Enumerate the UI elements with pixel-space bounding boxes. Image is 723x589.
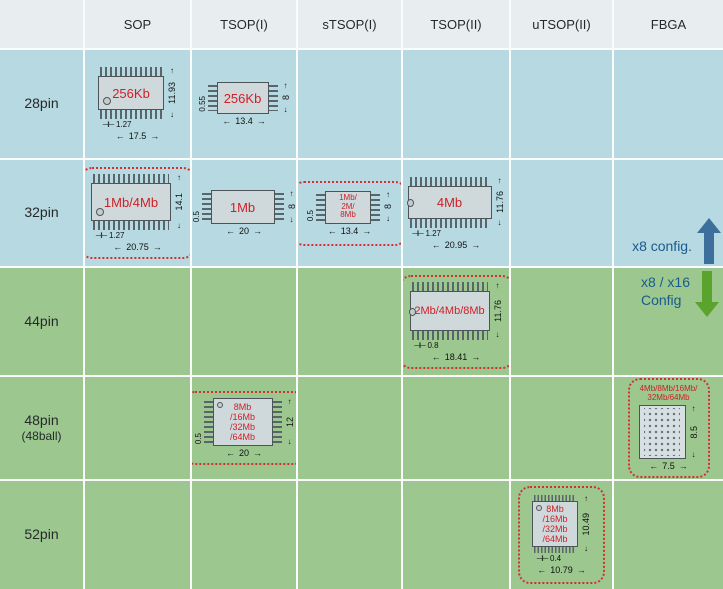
row-label-52pin: 52pin	[0, 481, 83, 589]
row-label-text: 28pin	[24, 95, 58, 113]
capacity-label: 4Mb	[437, 195, 462, 210]
width-dimension: 20.95	[432, 240, 481, 250]
height-dimension: 8	[287, 190, 297, 224]
header-stsop1: sTSOP(I)	[298, 0, 401, 48]
cell-52pin-sop	[85, 481, 190, 589]
header-tsop1: TSOP(I)	[192, 0, 296, 48]
cell-48pin-fbga: 4Mb/8Mb/16Mb/ 32Mb/64Mb 8.5 7.5	[614, 377, 723, 479]
cell-48pin-utsop2	[511, 377, 612, 479]
height-dimension: 8	[281, 82, 291, 114]
chip-pins-top	[410, 177, 490, 186]
cell-28pin-sop: 256Kb 11.93 1.27 17.5	[85, 50, 190, 158]
row-label-48pin: 48pin (48ball)	[0, 377, 83, 479]
sop-chip-drawing: 256Kb	[98, 67, 164, 119]
header-utsop2: uTSOP(II)	[511, 0, 612, 48]
tsop2-chip-drawing: 4Mb	[408, 177, 492, 228]
cell-28pin-tsop2	[403, 50, 509, 158]
pitch-dimension: 1.27	[95, 231, 125, 240]
height-dimension: 12	[285, 398, 295, 446]
package-tsop2-44pin-highlighted: 2Mb/4Mb/8Mb 11.76 0.8 18.41	[403, 275, 509, 369]
cell-44pin-stsop1	[298, 268, 401, 375]
chip-pins-top	[100, 67, 162, 76]
row-label-text: 44pin	[24, 313, 58, 331]
row-label-44pin: 44pin	[0, 268, 83, 375]
chip-pins-bottom	[93, 221, 169, 230]
capacity-label: 8Mb /16Mb /32Mb /64Mb	[230, 402, 255, 442]
height-dimension: 8.5	[689, 405, 699, 459]
cell-52pin-fbga	[614, 481, 723, 589]
chip-pins-bottom	[412, 331, 488, 340]
thickness-dimension: 0.5	[306, 210, 315, 221]
width-dimension: 20.75	[113, 242, 162, 252]
x8-x16-down-arrow-icon	[695, 271, 719, 317]
chip-pins-top	[412, 282, 488, 291]
capacity-label: 1Mb	[230, 200, 255, 215]
capacity-label: 2Mb/4Mb/8Mb	[414, 305, 484, 317]
chip-pins-bottom	[534, 547, 576, 553]
row-label-text: 52pin	[24, 526, 58, 544]
chip-pins-right	[273, 401, 282, 443]
row-label-text: 32pin	[24, 204, 58, 222]
width-dimension: 18.41	[432, 352, 481, 362]
cell-28pin-stsop1	[298, 50, 401, 158]
capacity-label: 1Mb/ 2M/ 8Mb	[339, 194, 357, 221]
height-dimension: 8	[383, 191, 393, 224]
thickness-dimension: 0.55	[198, 96, 207, 112]
row-label-28pin: 28pin	[0, 50, 83, 158]
capacity-label: 256Kb	[224, 91, 262, 106]
cell-32pin-tsop2: 4Mb 11.76 1.27 20.95	[403, 160, 509, 266]
fbga-chip-drawing	[639, 405, 686, 459]
cell-52pin-tsop2	[403, 481, 509, 589]
package-utsop2-52pin-highlighted: 8Mb /16Mb /32Mb /64Mb 10.49 0.4 10.79	[518, 486, 605, 584]
cell-52pin-stsop1	[298, 481, 401, 589]
width-dimension: 10.79	[537, 565, 586, 575]
tsop1-chip-drawing: 8Mb /16Mb /32Mb /64Mb	[204, 398, 282, 446]
capacity-label: 8Mb /16Mb /32Mb /64Mb	[542, 504, 567, 544]
cell-32pin-sop: 1Mb/4Mb 14.1 1.27 20.75	[85, 160, 190, 266]
width-dimension: 20	[226, 448, 262, 458]
chip-pins-left	[208, 85, 217, 111]
tsop1-chip-drawing: 256Kb	[208, 82, 278, 114]
tsop1-chip-drawing: 1Mb	[202, 190, 284, 224]
width-dimension: 7.5	[649, 461, 688, 471]
package-sop-28pin: 256Kb 11.93 1.27 17.5	[98, 67, 177, 141]
cell-44pin-fbga-x8x16-note: x8 / x16 Config	[614, 268, 723, 375]
tsop2-chip-drawing: 2Mb/4Mb/8Mb	[410, 282, 490, 340]
width-dimension: 17.5	[116, 131, 160, 141]
cell-28pin-utsop2	[511, 50, 612, 158]
chip-pins-left	[316, 194, 325, 221]
pitch-dimension: 0.8	[414, 341, 439, 350]
package-sop-32pin-highlighted: 1Mb/4Mb 14.1 1.27 20.75	[85, 167, 190, 259]
height-dimension: 14.1	[174, 174, 184, 230]
cell-28pin-tsop1: 0.55 256Kb 8 13.4	[192, 50, 296, 158]
chip-pins-bottom	[410, 219, 490, 228]
package-fbga-48ball-highlighted: 4Mb/8Mb/16Mb/ 32Mb/64Mb 8.5 7.5	[628, 378, 710, 479]
row-sublabel-text: (48ball)	[21, 429, 61, 444]
ball-grid	[644, 408, 680, 456]
package-matrix-table: SOP TSOP(I) sTSOP(I) TSOP(II) uTSOP(II) …	[0, 0, 723, 589]
sop-chip-drawing: 1Mb/4Mb	[91, 174, 171, 230]
cell-28pin-fbga	[614, 50, 723, 158]
width-dimension: 13.4	[328, 226, 372, 236]
row-label-text: 48pin	[24, 412, 58, 430]
row-label-32pin: 32pin	[0, 160, 83, 266]
cell-44pin-tsop2: 2Mb/4Mb/8Mb 11.76 0.8 18.41	[403, 268, 509, 375]
chip-pins-right	[269, 85, 278, 111]
cell-44pin-sop	[85, 268, 190, 375]
height-dimension: 11.93	[167, 67, 177, 119]
cell-32pin-fbga-x8-note: x8 config.	[614, 160, 723, 266]
height-dimension: 10.49	[581, 495, 591, 553]
width-dimension: 13.4	[222, 116, 266, 126]
cell-32pin-stsop1: 0.5 1Mb/ 2M/ 8Mb 8 13.4	[298, 160, 401, 266]
package-tsop1-28pin: 0.55 256Kb 8 13.4	[198, 82, 291, 126]
chip-pins-right	[371, 194, 380, 221]
header-fbga: FBGA	[614, 0, 723, 48]
pitch-dimension: 0.4	[536, 554, 561, 563]
cell-48pin-tsop1: 0.5 8Mb /16Mb /32Mb /64Mb 12 20	[192, 377, 296, 479]
cell-32pin-utsop2	[511, 160, 612, 266]
width-dimension: 20	[226, 226, 262, 236]
package-tsop1-48pin-highlighted: 0.5 8Mb /16Mb /32Mb /64Mb 12 20	[192, 391, 296, 465]
header-corner-cell	[0, 0, 83, 48]
height-dimension: 11.76	[493, 282, 503, 340]
thickness-dimension: 0.5	[192, 211, 201, 222]
cell-48pin-stsop1	[298, 377, 401, 479]
cell-48pin-tsop2	[403, 377, 509, 479]
chip-pins-left	[204, 401, 213, 443]
capacity-label: 256Kb	[112, 86, 150, 101]
chip-pins-top	[93, 174, 169, 183]
cell-32pin-tsop1: 0.5 1Mb 8 20	[192, 160, 296, 266]
cell-44pin-utsop2	[511, 268, 612, 375]
header-sop: SOP	[85, 0, 190, 48]
height-dimension: 11.76	[495, 177, 505, 228]
capacity-label: 1Mb/4Mb	[104, 195, 158, 210]
x8-up-arrow-icon	[697, 218, 721, 264]
x8-config-label: x8 config.	[632, 238, 692, 254]
utsop2-chip-drawing: 8Mb /16Mb /32Mb /64Mb	[532, 495, 578, 553]
pitch-dimension: 1.27	[102, 120, 132, 129]
capacity-label: 4Mb/8Mb/16Mb/ 32Mb/64Mb	[640, 385, 698, 403]
x8-x16-config-label: x8 / x16 Config	[641, 273, 690, 309]
chip-pins-bottom	[100, 110, 162, 119]
stsop1-chip-drawing: 1Mb/ 2M/ 8Mb	[316, 191, 380, 224]
cell-52pin-utsop2: 8Mb /16Mb /32Mb /64Mb 10.49 0.4 10.79	[511, 481, 612, 589]
chip-pins-left	[202, 193, 211, 221]
chip-pins-right	[275, 193, 284, 221]
cell-48pin-sop	[85, 377, 190, 479]
header-tsop2: TSOP(II)	[403, 0, 509, 48]
thickness-dimension: 0.5	[194, 433, 203, 444]
cell-52pin-tsop1	[192, 481, 296, 589]
package-tsop2-32pin: 4Mb 11.76 1.27 20.95	[408, 177, 505, 250]
pitch-dimension: 1.27	[412, 229, 442, 238]
package-tsop1-32pin: 0.5 1Mb 8 20	[192, 190, 296, 236]
cell-44pin-tsop1	[192, 268, 296, 375]
package-stsop1-32pin-highlighted: 0.5 1Mb/ 2M/ 8Mb 8 13.4	[298, 181, 401, 246]
